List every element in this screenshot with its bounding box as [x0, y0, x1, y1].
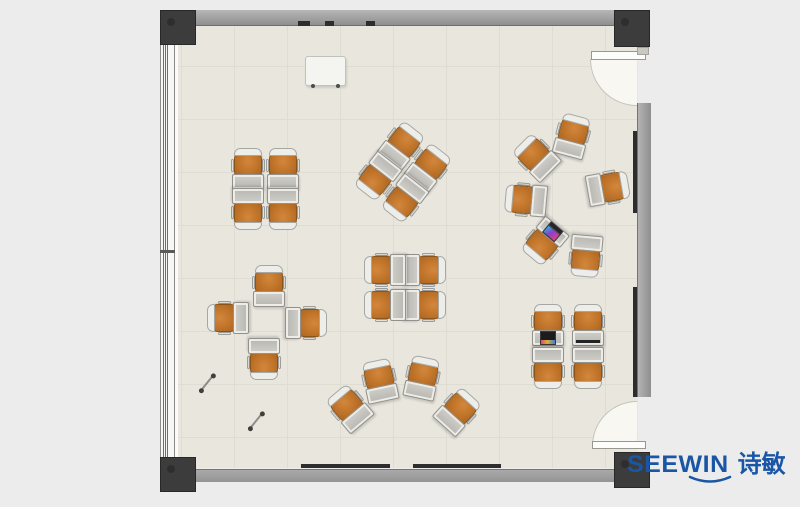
desk-top: [232, 188, 264, 204]
desk-top: [233, 302, 249, 334]
door-frame-stub: [637, 47, 649, 55]
desk-chair-unit: [252, 267, 286, 307]
seewin-logo: SEEWIN 诗敏: [627, 452, 786, 476]
chair-seat: [366, 256, 393, 284]
desk-chair-unit: [506, 181, 549, 218]
desk-chair-unit: [266, 150, 300, 190]
chair-seat: [534, 360, 562, 387]
corner-post: [160, 457, 196, 492]
wall-trim: [366, 21, 375, 26]
desk-top: [390, 289, 406, 321]
chair-armrest: [262, 159, 265, 172]
desk-top: [253, 291, 285, 307]
desk-top: [404, 289, 420, 321]
wall-trim: [298, 21, 310, 26]
desk-top: [404, 254, 420, 286]
chair-seat: [417, 291, 444, 319]
chair-seat: [209, 304, 236, 332]
chair-armrest: [297, 206, 300, 219]
desk-chair-unit: [571, 306, 605, 346]
desk-chair-unit: [231, 188, 265, 228]
chair-seat: [250, 351, 278, 378]
chair-seat: [574, 306, 602, 333]
desk-chair-unit: [285, 306, 325, 340]
wall-bottom: [196, 469, 615, 482]
chair-seat: [574, 360, 602, 387]
desk-chair-unit: [366, 253, 406, 287]
wall-right: [637, 103, 651, 397]
desk-chair-unit: [531, 306, 565, 346]
door-leaf-bottom: [592, 441, 646, 449]
wall-trim: [413, 464, 501, 468]
desk-top: [530, 184, 549, 217]
corner-post: [160, 10, 196, 45]
logo-swoosh-icon: [687, 475, 733, 485]
desk-chair-unit: [531, 347, 565, 387]
chair-seat: [534, 306, 562, 333]
chair-armrest: [422, 284, 435, 287]
wall-trim: [633, 131, 637, 213]
desk-top: [570, 234, 603, 253]
wall-top: [196, 10, 615, 26]
chair-armrest: [562, 315, 565, 328]
flipchart-whiteboard: [305, 56, 346, 86]
chair-seat: [417, 256, 444, 284]
desk-top: [390, 254, 406, 286]
chair-seat: [234, 150, 262, 177]
chair-seat: [234, 201, 262, 228]
logo-wordmark: SEEWIN: [627, 452, 729, 476]
desk-chair-unit: [366, 288, 406, 322]
wall-trim: [301, 464, 390, 468]
tablet-icon: [576, 340, 600, 343]
whiteboard-foot: [311, 84, 315, 88]
wall-trim: [325, 21, 334, 26]
chair-armrest: [602, 365, 605, 378]
chair-armrest: [562, 365, 565, 378]
chair-seat: [269, 150, 297, 177]
desk-chair-unit: [571, 347, 605, 387]
chair-armrest: [602, 315, 605, 328]
desk-chair-unit: [404, 253, 444, 287]
chair-seat: [269, 201, 297, 228]
floor-plan-render: SEEWIN 诗敏: [0, 0, 800, 507]
desk-chair-unit: [567, 234, 604, 277]
desk-chair-unit: [266, 188, 300, 228]
chair-armrest: [375, 284, 388, 287]
desk-top: [285, 307, 301, 339]
chair-armrest: [375, 319, 388, 322]
chair-armrest: [297, 159, 300, 172]
corner-post: [614, 10, 650, 47]
chair-seat: [366, 291, 393, 319]
desk-chair-unit: [247, 338, 281, 378]
desk-top: [532, 347, 564, 363]
logo-cjk-text: 诗敏: [738, 452, 786, 476]
desk-chair-unit: [404, 288, 444, 322]
chair-armrest: [278, 356, 281, 369]
chair-armrest: [218, 332, 231, 335]
chair-armrest: [422, 319, 435, 322]
chair-seat: [298, 309, 325, 337]
desk-chair-unit: [231, 150, 265, 190]
desk-top: [248, 338, 280, 354]
wall-trim: [633, 287, 637, 397]
laptop-icon: [540, 331, 556, 345]
desk-top: [267, 188, 299, 204]
whiteboard-foot: [336, 84, 340, 88]
desk-top: [572, 330, 604, 346]
chair-armrest: [262, 206, 265, 219]
desk-chair-unit: [584, 168, 629, 208]
chair-armrest: [303, 337, 316, 340]
window-mullion-joint: [160, 250, 175, 253]
desk-chair-unit: [209, 301, 249, 335]
chair-seat: [255, 267, 283, 294]
chair-armrest: [283, 276, 286, 289]
desk-top: [572, 347, 604, 363]
